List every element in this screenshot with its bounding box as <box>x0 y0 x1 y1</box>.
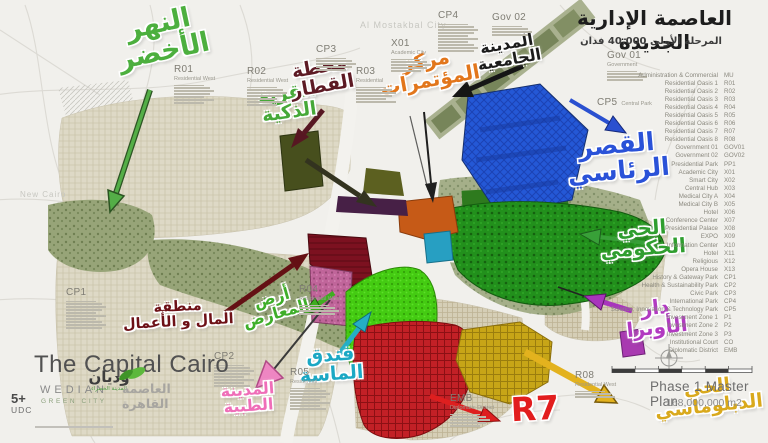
zone-label-r02: R02 Residential West <box>247 66 288 106</box>
legend-code: X12 <box>724 258 748 265</box>
legend-code: X06 <box>724 209 748 216</box>
legend-row: Investment Zone 1 P1 <box>596 314 748 322</box>
legend-code: GOV02 <box>724 152 748 159</box>
legend-code: R07 <box>724 128 748 135</box>
label-detail-lines <box>391 59 431 72</box>
legend-code: X05 <box>724 201 748 208</box>
legend-name: Investment Zone 2 <box>667 322 718 329</box>
zone-label-gov02: Gov 02 <box>492 12 532 36</box>
legend-name: Government 02 <box>675 152 718 159</box>
legend-row: Hotel X11 <box>596 249 748 257</box>
legend-name: Hotel <box>704 250 718 257</box>
legend-name: Diplomatic District <box>668 347 718 354</box>
legend-code: X13 <box>724 266 748 273</box>
label-detail-lines <box>575 391 616 398</box>
legend-code: X04 <box>724 193 748 200</box>
label-detail-lines <box>492 26 532 36</box>
legend-name: Medical City A <box>679 193 718 200</box>
legend-code: CP5 <box>724 306 748 313</box>
legend-code: X02 <box>724 177 748 184</box>
legend: Administration & Commercial MU Residenti… <box>596 71 748 354</box>
legend-name: Administration & Commercial <box>638 72 718 79</box>
legend-name: Residential Oasis 5 <box>665 112 718 119</box>
legend-name: Civic Park <box>690 290 718 297</box>
legend-row: Residential Oasis 4 R04 <box>596 103 748 111</box>
legend-code: R01 <box>724 80 748 87</box>
legend-code: X09 <box>724 233 748 240</box>
zone-label-r03: R03 Residential <box>356 66 396 103</box>
label-detail-lines <box>247 87 288 106</box>
legend-row: International Park CP4 <box>596 298 748 306</box>
zone-label-r01: R01 Residential West <box>174 64 215 104</box>
legend-row: Government 02 GOV02 <box>596 152 748 160</box>
legend-name: International Park <box>670 298 719 305</box>
legend-name: Investment Zone 1 <box>667 314 718 321</box>
legend-row: Medical City B X05 <box>596 201 748 209</box>
legend-code: P2 <box>724 322 748 329</box>
legend-name: Government 01 <box>675 144 718 151</box>
legend-code: EMB <box>724 347 748 354</box>
legend-name: Academic City <box>678 169 718 176</box>
legend-name: Religious <box>693 258 718 265</box>
legend-name: Residential Oasis 8 <box>665 136 718 143</box>
legend-row: Government 01 GOV01 <box>596 144 748 152</box>
zone-almasa-hotel <box>424 231 453 263</box>
watermark-mostakbal: Al Mostakbal City <box>360 20 447 30</box>
label-detail-lines <box>299 305 340 315</box>
legend-name: Institutional Court <box>670 339 718 346</box>
leaf-icon <box>106 366 148 380</box>
legend-row: Civic Park CP3 <box>596 290 748 298</box>
legend-code: CP3 <box>724 290 748 297</box>
fine-print <box>35 426 113 428</box>
legend-code: CP1 <box>724 274 748 281</box>
legend-code: CP4 <box>724 298 748 305</box>
legend-name: Medical City B <box>678 201 718 208</box>
legend-row: EXPO X09 <box>596 233 748 241</box>
legend-row: Presidential Park PP1 <box>596 160 748 168</box>
callout-financial-district: منطقة المال و الأعمال <box>115 297 240 333</box>
label-detail-lines <box>174 85 215 104</box>
legend-row: Religious X12 <box>596 257 748 265</box>
legend-code: R06 <box>724 120 748 127</box>
legend-name: Residential Oasis 1 <box>665 80 718 87</box>
label-detail-lines <box>356 87 396 103</box>
label-detail-lines <box>316 58 356 71</box>
legend-name: Residential Oasis 7 <box>665 128 718 135</box>
label-detail-lines <box>290 388 330 410</box>
zone-label-cp3: CP3 <box>316 44 356 71</box>
zone-label-cp1: CP1 <box>66 287 106 329</box>
legend-row: Institutional Court CO <box>596 338 748 346</box>
zone-label-r04: R04 Residential West <box>299 284 340 315</box>
legend-name: Residential Oasis 6 <box>665 120 718 127</box>
brand-green-city: GREEN CITY <box>41 398 107 405</box>
legend-name: Information Center <box>667 242 718 249</box>
legend-row: History & Gateway Park CP1 <box>596 273 748 281</box>
legend-code: X07 <box>724 217 748 224</box>
legend-code: CO <box>724 339 748 346</box>
legend-name: Smart City <box>689 177 718 184</box>
legend-code: R05 <box>724 112 748 119</box>
legend-row: Health & Sustainability Park CP2 <box>596 281 748 289</box>
master-plan-map: العاصمة الإدارية الجديدة المرحلة الأولى … <box>0 0 768 443</box>
legend-row: Residential Oasis 2 R02 <box>596 87 748 95</box>
legend-code: X11 <box>724 250 748 257</box>
legend-code: P1 <box>724 314 748 321</box>
legend-name: Residential Oasis 3 <box>665 96 718 103</box>
page-subtitle: المرحلة الأولى 40,000 فدان <box>576 36 726 47</box>
legend-row: Residential Oasis 3 R03 <box>596 95 748 103</box>
legend-name: Opera House <box>681 266 718 273</box>
zone-label-r08: R08 Residential West <box>575 370 616 398</box>
legend-row: Administration & Commercial MU <box>596 71 748 79</box>
legend-code: R03 <box>724 96 748 103</box>
legend-row: Residential Oasis 5 R05 <box>596 111 748 119</box>
legend-row: Investment Zone 3 P3 <box>596 330 748 338</box>
legend-name: Residential Oasis 4 <box>665 104 718 111</box>
zone-label-r05: R05 Residential <box>290 367 330 410</box>
legend-row: Residential Oasis 8 R08 <box>596 136 748 144</box>
udc-logo: 5+ UDC <box>11 392 32 415</box>
label-detail-lines <box>438 24 478 52</box>
legend-name: Residential Oasis 2 <box>665 88 718 95</box>
legend-code: PP1 <box>724 161 748 168</box>
legend-code: R08 <box>724 136 748 143</box>
legend-name: EXPO <box>701 233 718 240</box>
label-detail-lines <box>450 414 494 427</box>
legend-row: Opera House X13 <box>596 265 748 273</box>
callout-r7: R7 <box>499 390 571 427</box>
watermark-new-cairo: New Cairo <box>20 190 66 199</box>
legend-row: Conference Center X07 <box>596 217 748 225</box>
legend-row: Hotel X06 <box>596 209 748 217</box>
legend-row: Residential Oasis 1 R01 <box>596 79 748 87</box>
legend-code: X03 <box>724 185 748 192</box>
legend-row: Information Center X10 <box>596 241 748 249</box>
legend-code: X10 <box>724 242 748 249</box>
zone-label-cp4: CP4 <box>438 10 478 52</box>
legend-row: Residential Oasis 6 R06 <box>596 120 748 128</box>
legend-row: Smart City X02 <box>596 176 748 184</box>
zone-label-x01: X01 Academic City <box>391 38 431 72</box>
legend-row: Central Hub X03 <box>596 184 748 192</box>
legend-name: Conference Center <box>666 217 718 224</box>
legend-row: Academic City X01 <box>596 168 748 176</box>
brand-capital-arabic: العاصمة القاهرة <box>122 381 218 411</box>
zone-label-emb: EMB Diplomatic District <box>450 393 494 427</box>
legend-code: GOV01 <box>724 144 748 151</box>
legend-code: R02 <box>724 88 748 95</box>
legend-row: Residential Oasis 7 R07 <box>596 128 748 136</box>
area-label: 168,000,000 m2 <box>666 397 742 409</box>
legend-code: R04 <box>724 104 748 111</box>
legend-name: Science, Innovation & Technology Park <box>611 306 718 313</box>
legend-row: Medical City A X04 <box>596 192 748 200</box>
legend-code: X01 <box>724 169 748 176</box>
legend-code: P3 <box>724 331 748 338</box>
legend-code: X08 <box>724 225 748 232</box>
legend-row: Presidential Palace X08 <box>596 225 748 233</box>
label-detail-lines <box>66 301 106 329</box>
legend-code: MU <box>724 72 748 79</box>
legend-row: Diplomatic District EMB <box>596 346 748 354</box>
legend-name: Presidential Park <box>671 161 718 168</box>
legend-row: Investment Zone 2 P2 <box>596 322 748 330</box>
legend-name: Health & Sustainability Park <box>642 282 718 289</box>
zone-smart-village <box>363 168 404 196</box>
legend-row: Science, Innovation & Technology Park CP… <box>596 306 748 314</box>
legend-name: Investment Zone 3 <box>667 331 718 338</box>
legend-name: Central Hub <box>685 185 718 192</box>
legend-name: Hotel <box>704 209 718 216</box>
legend-code: CP2 <box>724 282 748 289</box>
legend-name: History & Gateway Park <box>652 274 718 281</box>
legend-name: Presidential Palace <box>665 225 718 232</box>
